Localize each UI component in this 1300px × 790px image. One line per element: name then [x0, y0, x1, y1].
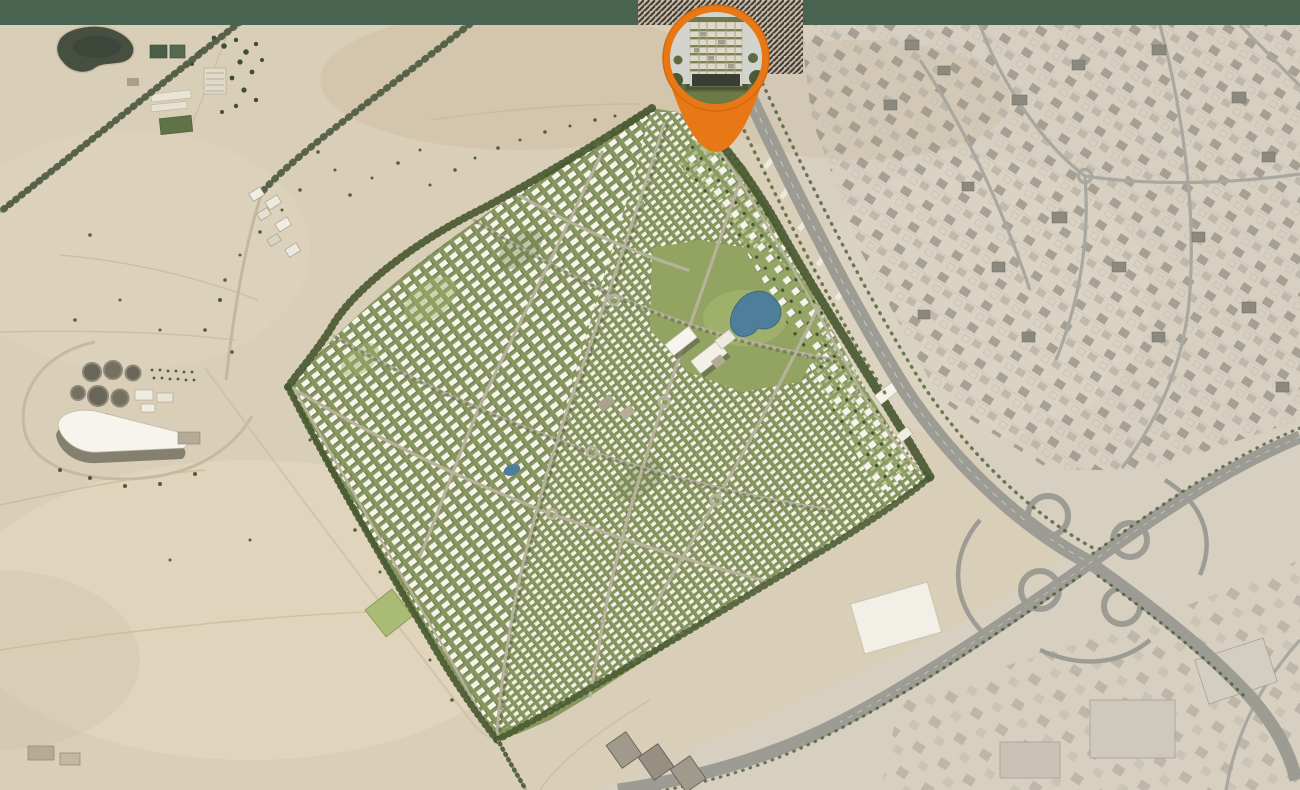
location-map-section [0, 0, 1300, 790]
satellite-map [0, 0, 1300, 790]
